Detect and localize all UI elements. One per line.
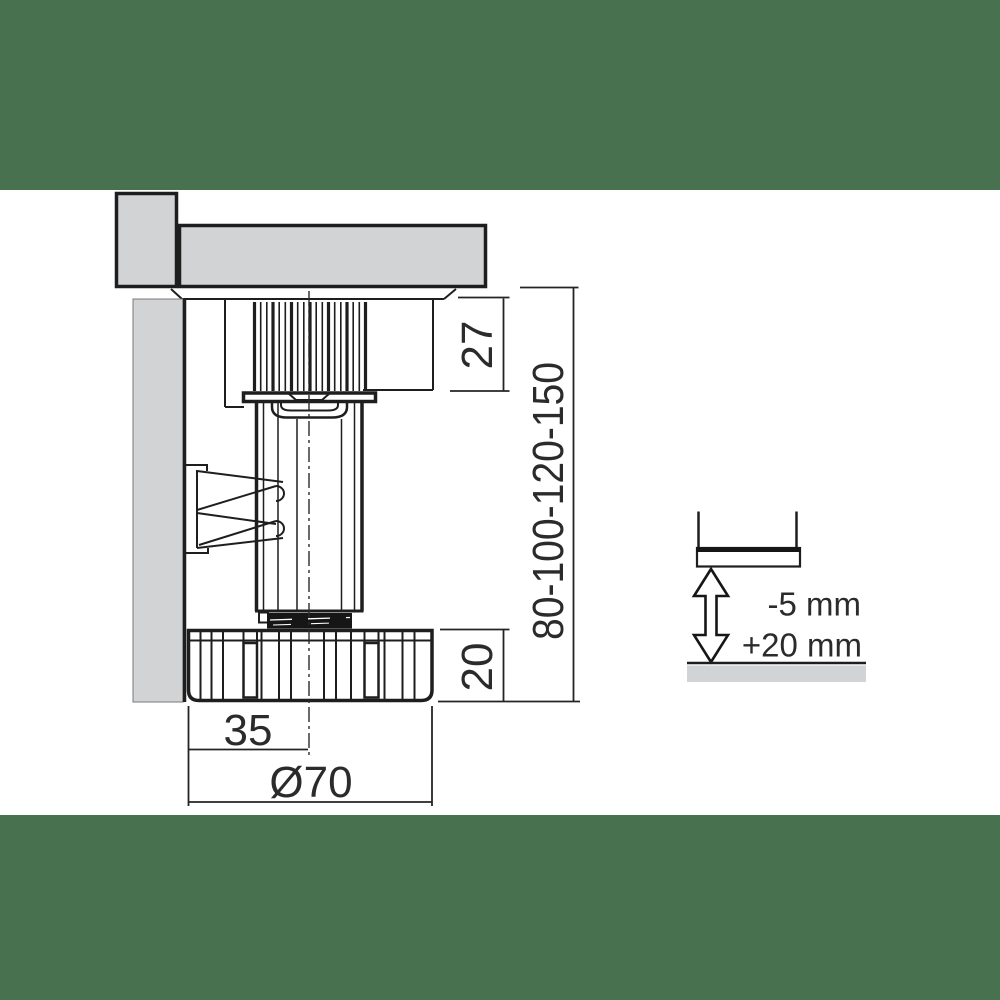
adjust-minus-label: -5 mm (768, 586, 862, 623)
dim-label-leg-heights: 80-100-120-150 (524, 362, 573, 640)
leg-foot-base (187, 631, 434, 701)
leg-adjust-thread (259, 613, 352, 629)
mounting-recess-outline (171, 289, 456, 407)
cabinet-bottom-panel (180, 226, 486, 287)
floor-shadow (687, 666, 866, 683)
up-down-arrow-icon (694, 569, 728, 662)
plinth-foot-drawing: 27 80-100-120-150 20 35 Ø70 (0, 0, 1000, 1000)
dim-label-27: 27 (453, 321, 502, 370)
dim-label-20: 20 (453, 643, 502, 692)
adjustment-diagram: -5 mm +20 mm (687, 512, 866, 683)
foot-slot-right (365, 643, 379, 698)
cabinet-side-panel (117, 194, 177, 287)
leg-thread-top (255, 302, 366, 391)
plinth-panel (133, 299, 185, 702)
technical-drawing-page: 27 80-100-120-150 20 35 Ø70 (0, 0, 1000, 1000)
cabinet-panels (117, 194, 486, 287)
dim-label-35: 35 (224, 706, 273, 755)
foot-slot-left (244, 643, 258, 698)
adjust-plus-label: +20 mm (742, 627, 862, 664)
dim-label-diameter-70: Ø70 (269, 758, 352, 807)
spring-clip (186, 465, 284, 553)
